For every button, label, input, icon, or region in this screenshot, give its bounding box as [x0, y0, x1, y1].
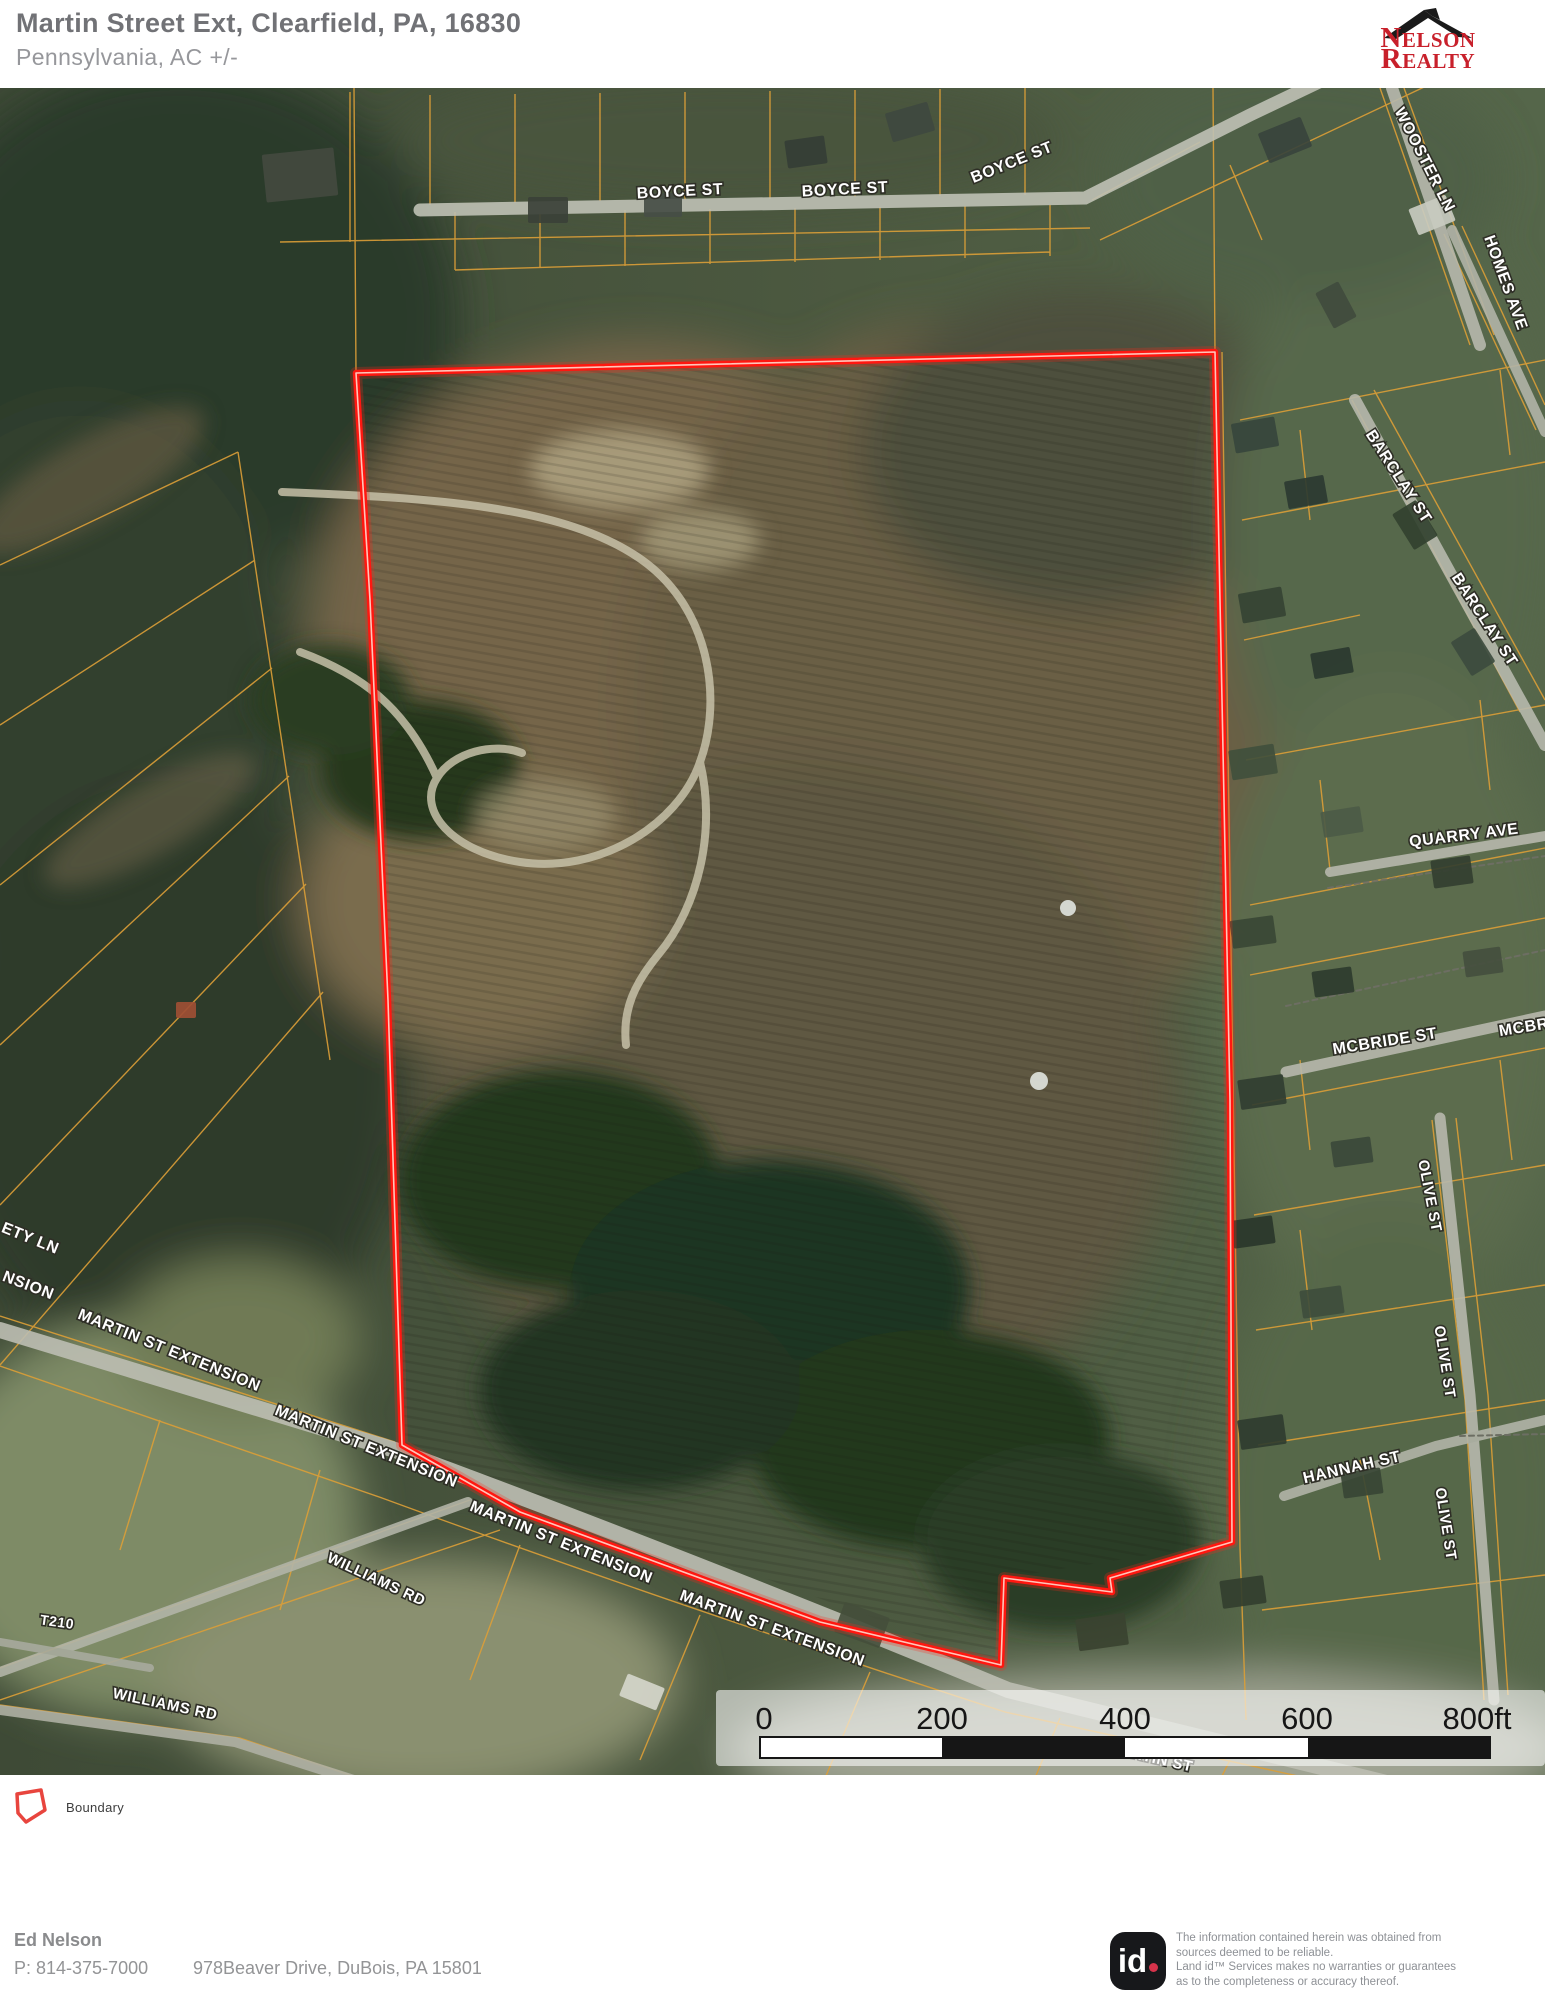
boundary-icon	[12, 1786, 48, 1828]
scalebar-segment	[942, 1737, 1125, 1758]
scalebar-segment	[1125, 1737, 1308, 1758]
scalebar: 0200400600800ft	[716, 1690, 1545, 1766]
legend-boundary-label: Boundary	[66, 1800, 124, 1815]
satellite-base	[0, 60, 1545, 1830]
legend: Boundary	[12, 1786, 124, 1828]
disclaimer-text: The information contained herein was obt…	[1176, 1931, 1538, 1989]
scalebar-segment	[1308, 1737, 1490, 1758]
water-tank	[1030, 1072, 1048, 1090]
scalebar-label: 200	[916, 1701, 968, 1736]
land-id-logo: id	[1110, 1932, 1166, 1990]
scalebar-label: 600	[1281, 1701, 1333, 1736]
map-canvas: BOYCE STBOYCE STBOYCE STWOOSTER LNHOMES …	[0, 0, 1545, 2000]
scalebar-label: 0	[755, 1701, 772, 1736]
logged-texture	[356, 352, 1232, 1665]
scalebar-label: 800ft	[1443, 1701, 1512, 1736]
logo-dot	[1149, 1963, 1158, 1972]
agent-address: 978Beaver Drive, DuBois, PA 15801	[193, 1958, 482, 1979]
scalebar-label: 400	[1099, 1701, 1151, 1736]
agent-phone: P: 814-375-7000	[14, 1958, 148, 1979]
agent-name: Ed Nelson	[14, 1930, 102, 1951]
report-page: Martin Street Ext, Clearfield, PA, 16830…	[0, 0, 1545, 2000]
water-tank	[1060, 900, 1076, 916]
scalebar-segment	[760, 1737, 942, 1758]
